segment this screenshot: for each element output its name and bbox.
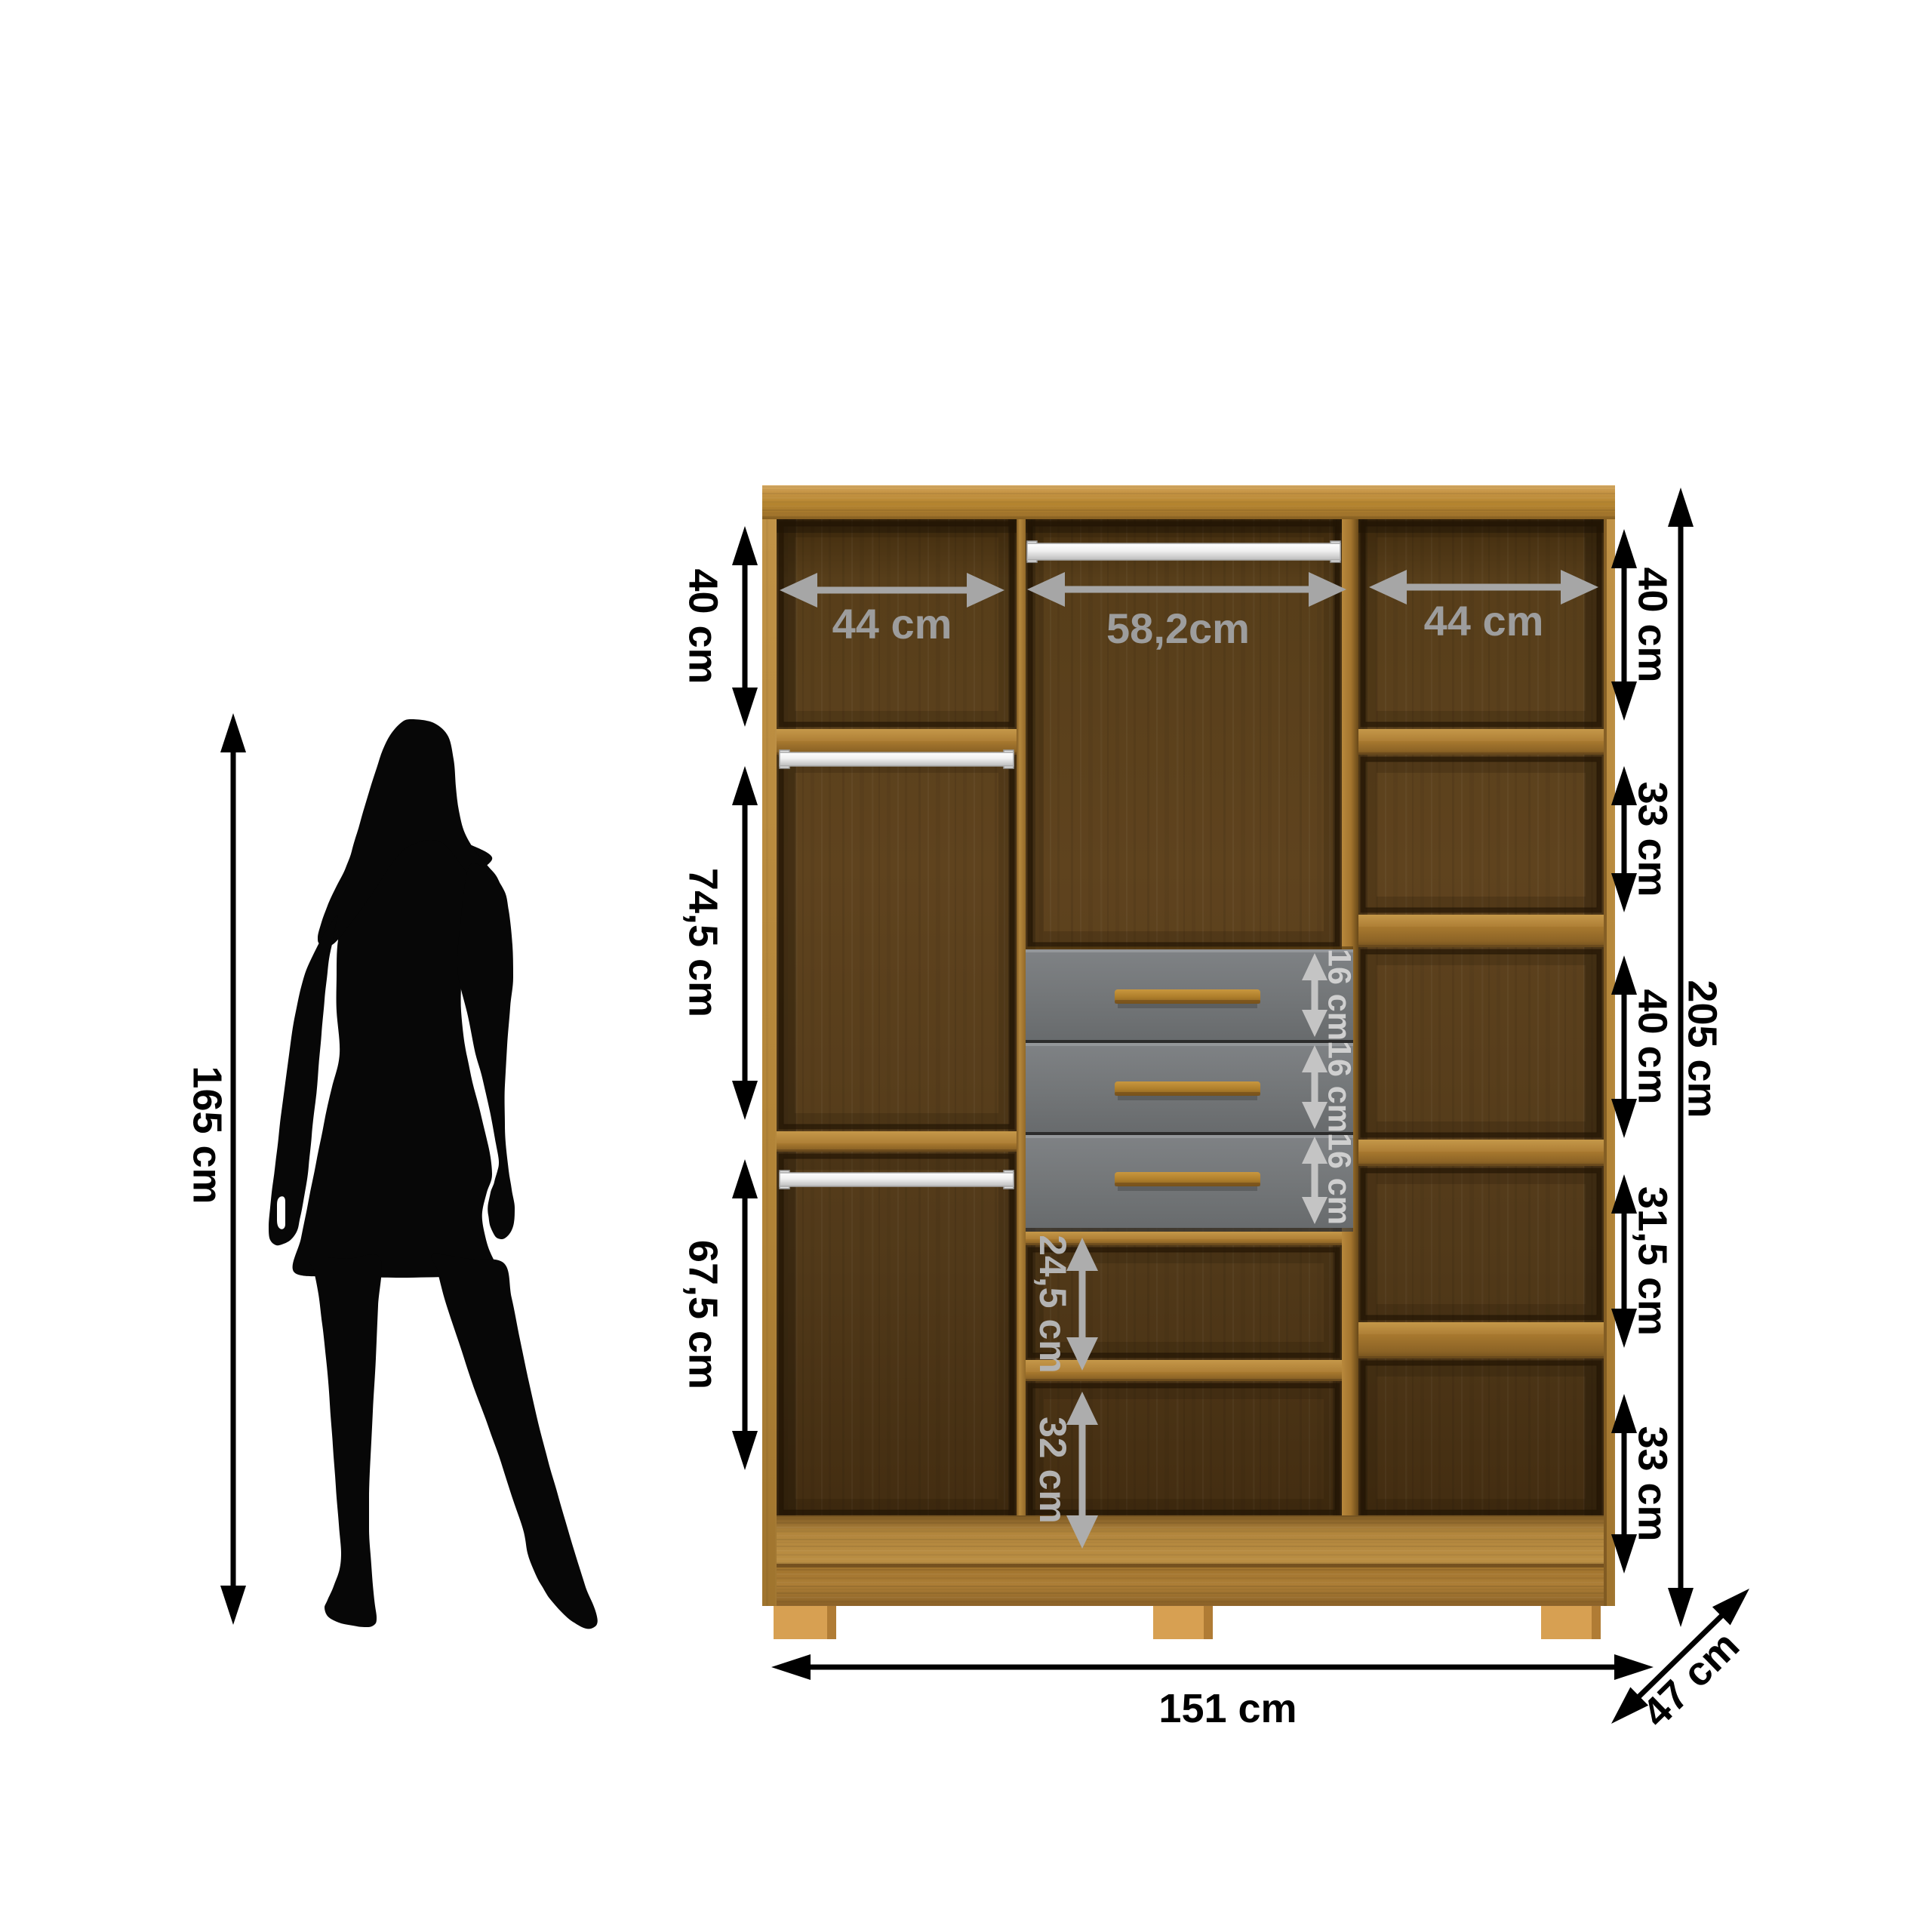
svg-text:16 cm: 16 cm [1321,949,1358,1041]
svg-text:165 cm: 165 cm [185,1066,230,1204]
svg-text:33 cm: 33 cm [1630,1426,1675,1541]
svg-text:40 cm: 40 cm [1630,989,1675,1104]
svg-text:40 cm: 40 cm [681,568,726,684]
svg-text:16 cm: 16 cm [1321,1133,1358,1225]
svg-text:151 cm: 151 cm [1158,1686,1297,1731]
svg-text:33 cm: 33 cm [1630,781,1675,897]
svg-text:16 cm: 16 cm [1321,1041,1358,1133]
svg-text:205 cm: 205 cm [1680,980,1725,1118]
svg-text:67,5 cm: 67,5 cm [681,1240,726,1389]
svg-text:40 cm: 40 cm [1630,567,1675,682]
svg-text:44 cm: 44 cm [1424,597,1544,645]
svg-text:24,5 cm: 24,5 cm [1032,1235,1074,1373]
svg-text:32 cm: 32 cm [1032,1417,1074,1524]
svg-text:58,2cm: 58,2cm [1106,605,1250,652]
svg-text:44 cm: 44 cm [832,600,952,648]
svg-text:74,5 cm: 74,5 cm [681,868,726,1017]
svg-text:31,5 cm: 31,5 cm [1630,1186,1675,1336]
